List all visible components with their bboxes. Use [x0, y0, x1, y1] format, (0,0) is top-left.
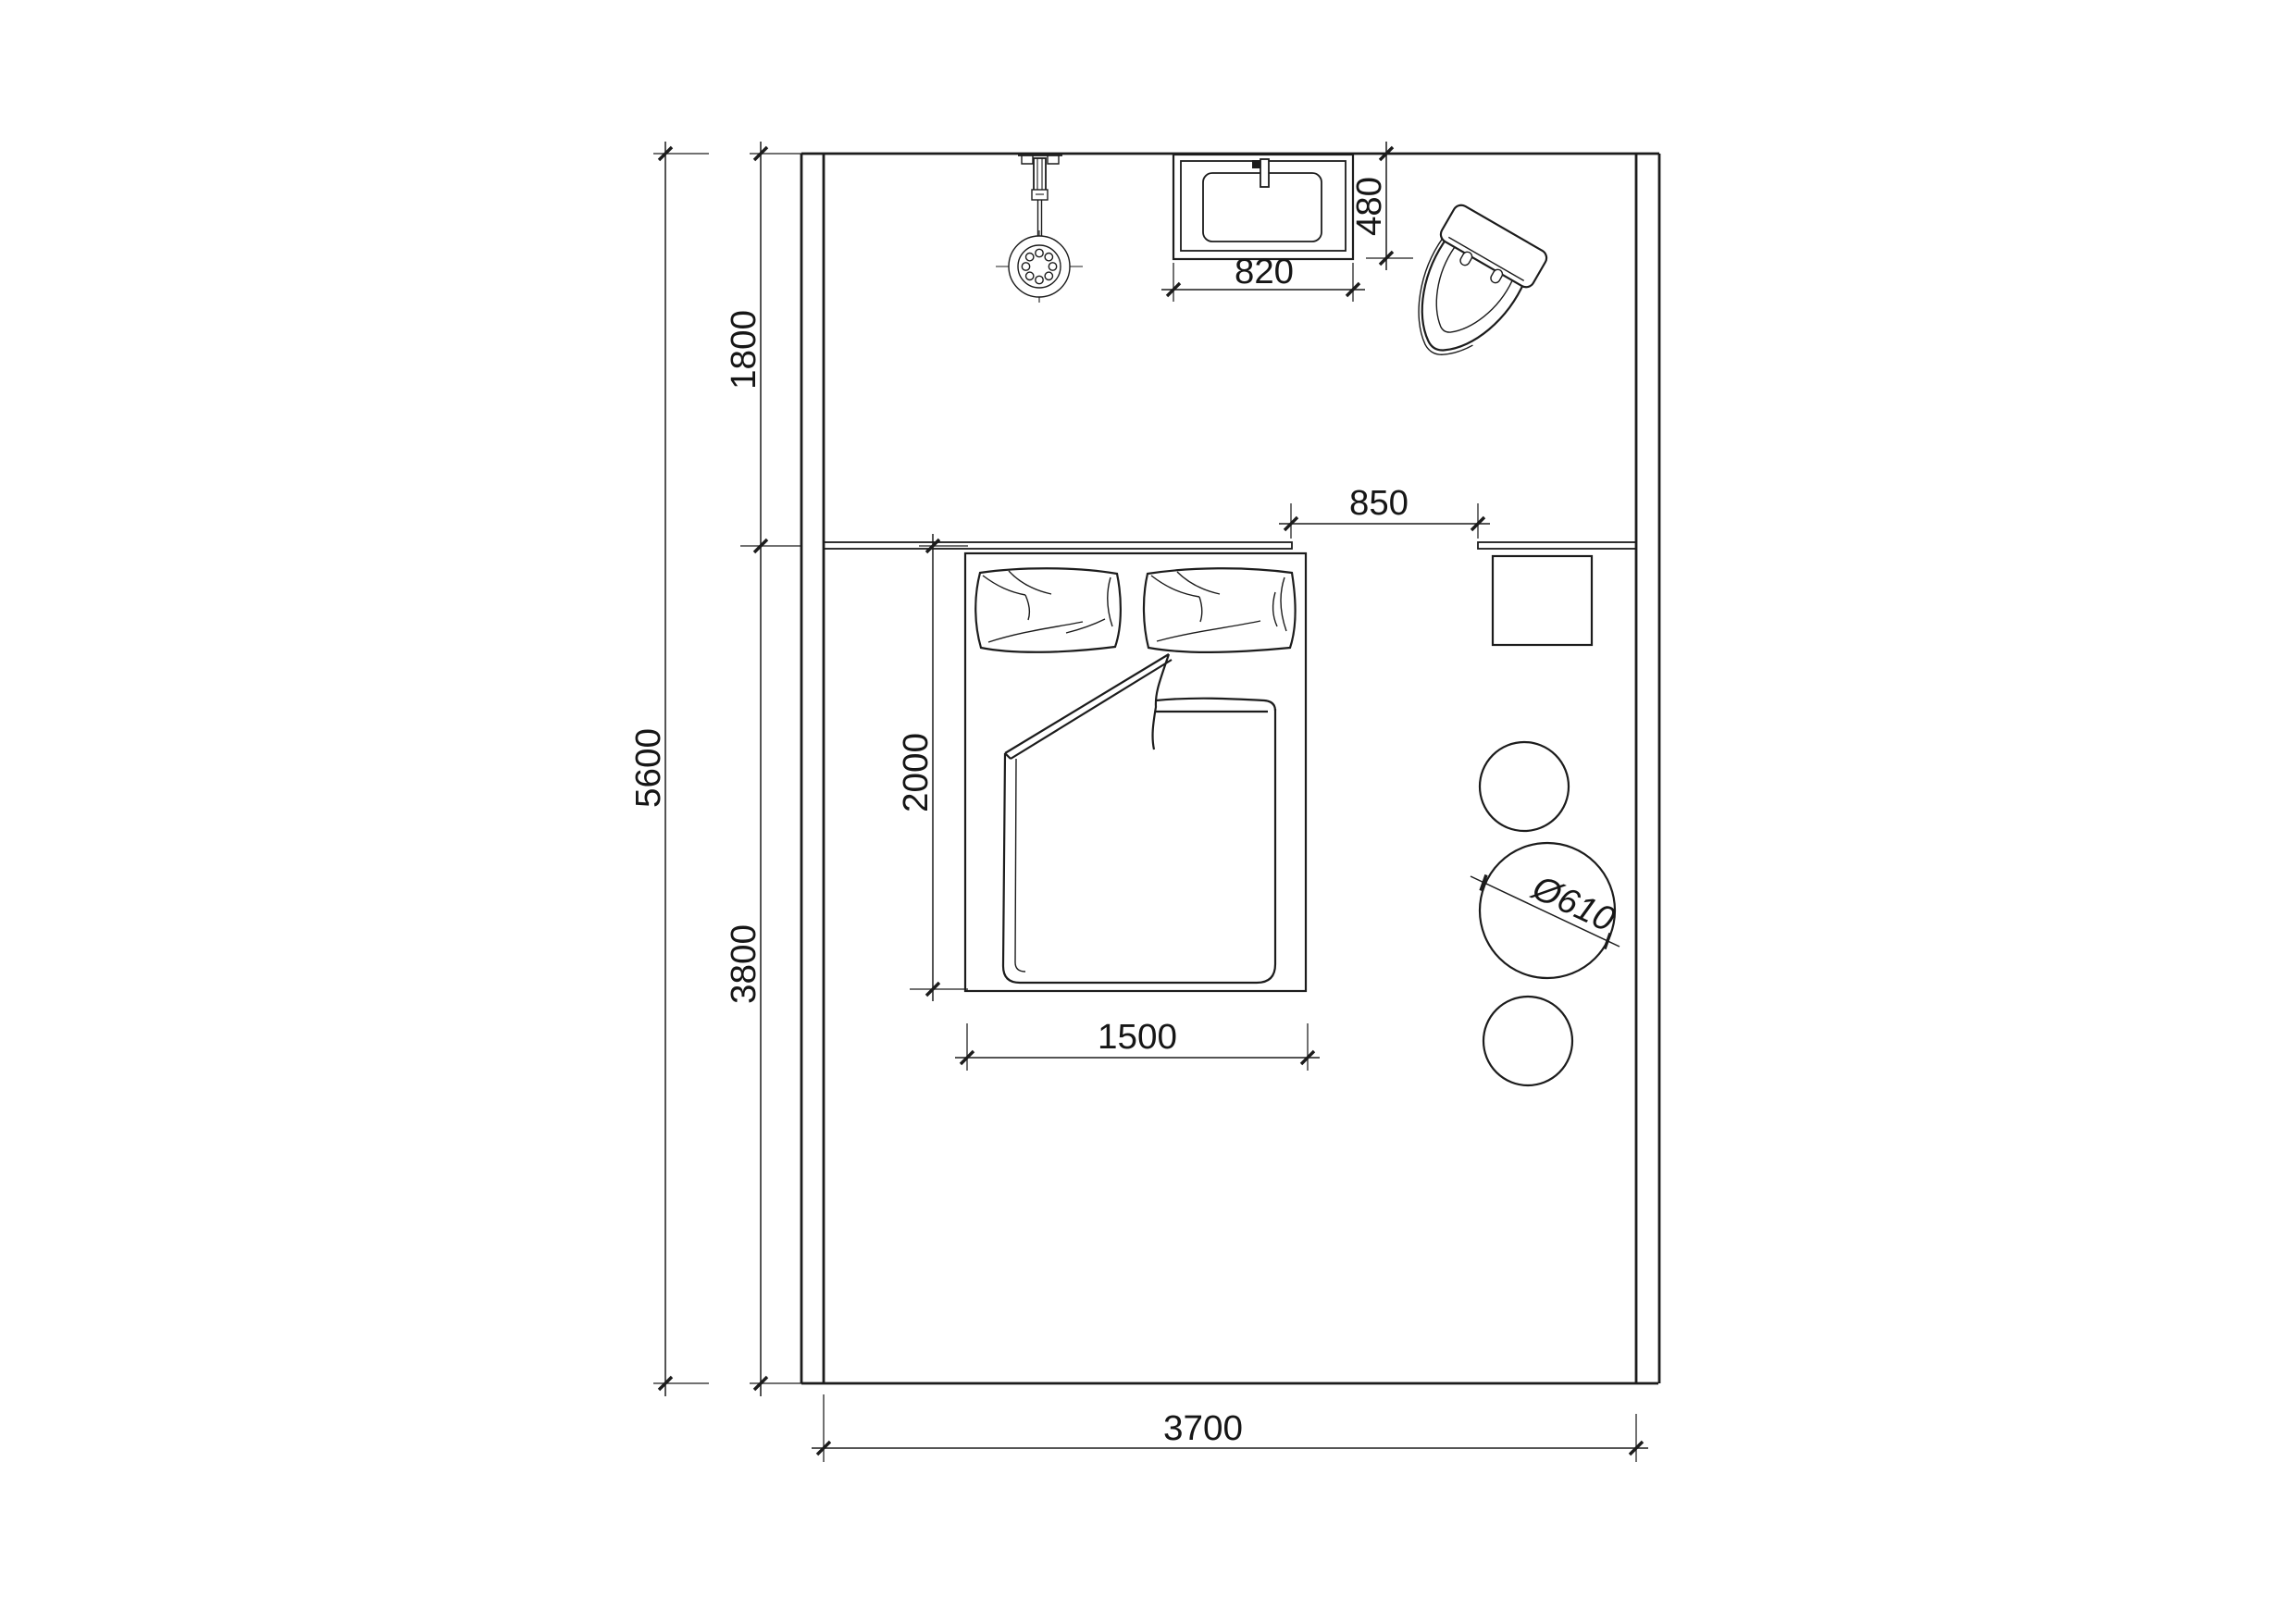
- washbasin-icon: [1173, 155, 1353, 259]
- headboard-ledge-left: [824, 542, 1292, 549]
- pillow-left-icon: [975, 568, 1121, 652]
- floor-plan-drawing: 5600 1800 3800 3700 850 820 480 1500 200…: [0, 0, 2296, 1623]
- dim-bed-length: 2000: [897, 733, 936, 812]
- floor-plan: 5600 1800 3800 3700 850 820 480 1500 200…: [0, 0, 2296, 1623]
- dim-room-height: 5600: [629, 728, 668, 808]
- headboard-ledge-right: [1478, 542, 1636, 549]
- stool-bottom-icon: [1483, 997, 1572, 1085]
- dim-label-1800: 1800: [725, 310, 763, 390]
- dim-label-3800: 3800: [725, 924, 763, 1004]
- dim-basin-depth: 480: [1350, 177, 1389, 236]
- dim-zone-top: 1800: [725, 310, 763, 390]
- dim-label-2000: 2000: [897, 733, 936, 812]
- side-table-icon: [1493, 556, 1592, 645]
- toilet-icon: [1386, 202, 1549, 378]
- dim-label-1500: 1500: [1098, 1018, 1177, 1057]
- dim-label-480: 480: [1350, 177, 1389, 236]
- pillow-right-icon: [1144, 568, 1296, 652]
- dim-label-3700: 3700: [1163, 1409, 1243, 1448]
- dim-bed-width: 1500: [1098, 1018, 1177, 1057]
- dim-room-width: 3700: [1163, 1409, 1243, 1448]
- bed-icon: [965, 553, 1306, 991]
- dim-label-850: 850: [1349, 484, 1409, 523]
- dim-zone-bottom: 3800: [725, 924, 763, 1004]
- dimension-lines: 5600 1800 3800 3700 850 820 480 1500 200…: [629, 142, 1648, 1462]
- dim-basin-width: 820: [1235, 253, 1294, 291]
- dim-label-820: 820: [1235, 253, 1294, 291]
- stool-top-icon: [1480, 742, 1569, 831]
- dim-label-5600: 5600: [629, 728, 668, 808]
- dim-walkway: 850: [1349, 484, 1409, 523]
- duvet-icon: [1003, 654, 1275, 983]
- shower-icon: [996, 155, 1083, 303]
